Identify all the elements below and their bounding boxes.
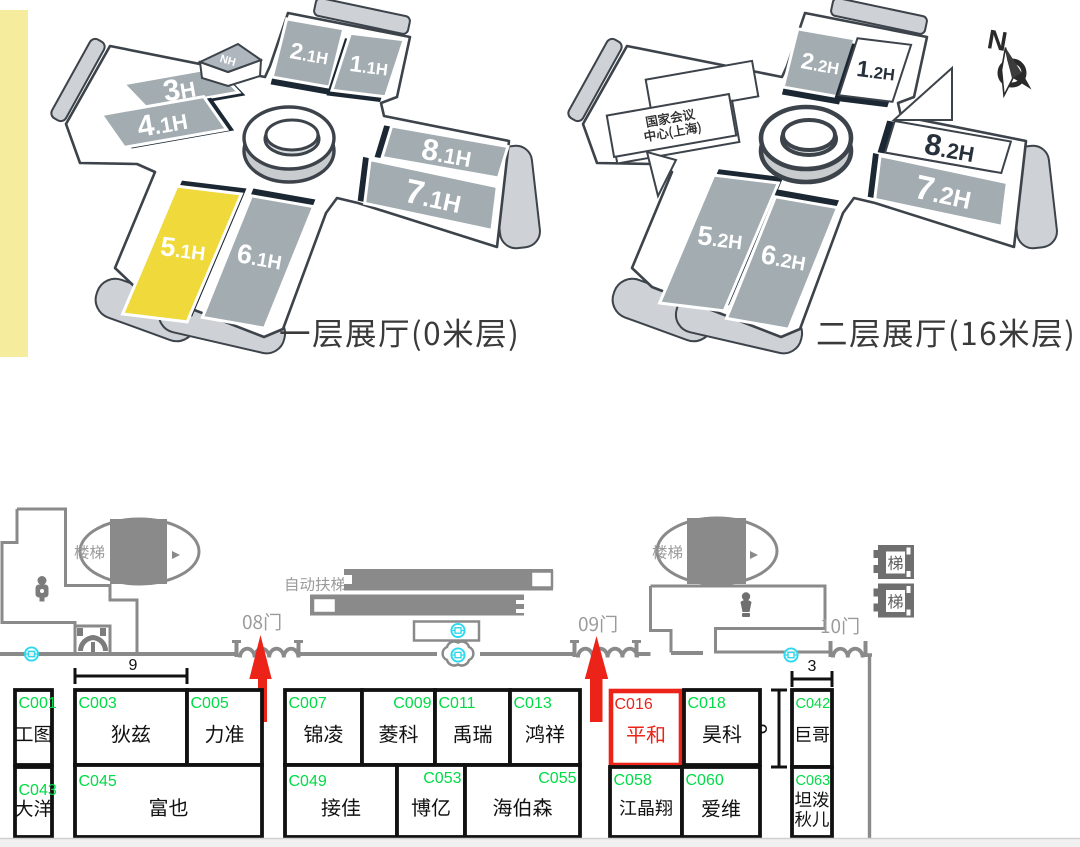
svg-text:秋儿: 秋儿 [795, 807, 830, 832]
svg-text:08门: 08门 [242, 608, 282, 635]
svg-text:接佳: 接佳 [321, 792, 361, 821]
svg-text:菱科: 菱科 [379, 719, 419, 748]
svg-text:鸿祥: 鸿祥 [525, 719, 565, 748]
svg-text:平和: 平和 [626, 719, 666, 748]
svg-text:C060: C060 [686, 772, 724, 789]
svg-text:3: 3 [808, 658, 817, 675]
svg-text:9: 9 [129, 657, 138, 674]
svg-text:自动扶梯: 自动扶梯 [284, 573, 346, 595]
svg-text:狄兹: 狄兹 [111, 719, 151, 748]
svg-text:力准: 力准 [205, 719, 245, 748]
svg-text:C001: C001 [19, 695, 57, 712]
svg-text:巨哥: 巨哥 [794, 721, 830, 747]
svg-text:C049: C049 [289, 773, 327, 790]
svg-text:工图: 工图 [14, 720, 52, 747]
svg-text:锦凌: 锦凌 [304, 719, 344, 748]
svg-text:C003: C003 [79, 695, 117, 712]
svg-text:C042: C042 [796, 696, 831, 712]
svg-text:大洋: 大洋 [14, 794, 52, 821]
svg-text:爱维: 爱维 [701, 793, 741, 822]
svg-text:C053: C053 [423, 770, 461, 787]
svg-text:江晶翔: 江晶翔 [619, 795, 673, 821]
svg-text:博亿: 博亿 [411, 792, 451, 821]
svg-text:C045: C045 [79, 773, 117, 790]
svg-text:C016: C016 [615, 696, 653, 713]
svg-text:C005: C005 [191, 695, 229, 712]
svg-text:C007: C007 [289, 695, 327, 712]
svg-text:二层展厅(16米层): 二层展厅(16米层) [816, 309, 1076, 355]
svg-text:一层展厅(0米层): 一层展厅(0米层) [279, 309, 520, 355]
svg-text:C013: C013 [514, 695, 552, 712]
svg-text:C011: C011 [439, 695, 476, 712]
svg-text:梯: 梯 [887, 589, 903, 613]
svg-text:楼梯: 楼梯 [652, 541, 683, 563]
svg-text:楼梯: 楼梯 [74, 541, 105, 563]
svg-text:C018: C018 [688, 695, 726, 712]
svg-text:海伯森: 海伯森 [493, 792, 553, 821]
svg-text:昊科: 昊科 [702, 719, 742, 748]
svg-text:10门: 10门 [820, 612, 860, 639]
svg-text:富也: 富也 [149, 792, 189, 821]
svg-text:09门: 09门 [578, 610, 618, 637]
svg-text:梯: 梯 [887, 550, 903, 574]
svg-text:C055: C055 [538, 770, 576, 787]
svg-text:C009: C009 [393, 695, 431, 712]
svg-text:C058: C058 [614, 772, 652, 789]
svg-text:禹瑞: 禹瑞 [453, 719, 493, 748]
